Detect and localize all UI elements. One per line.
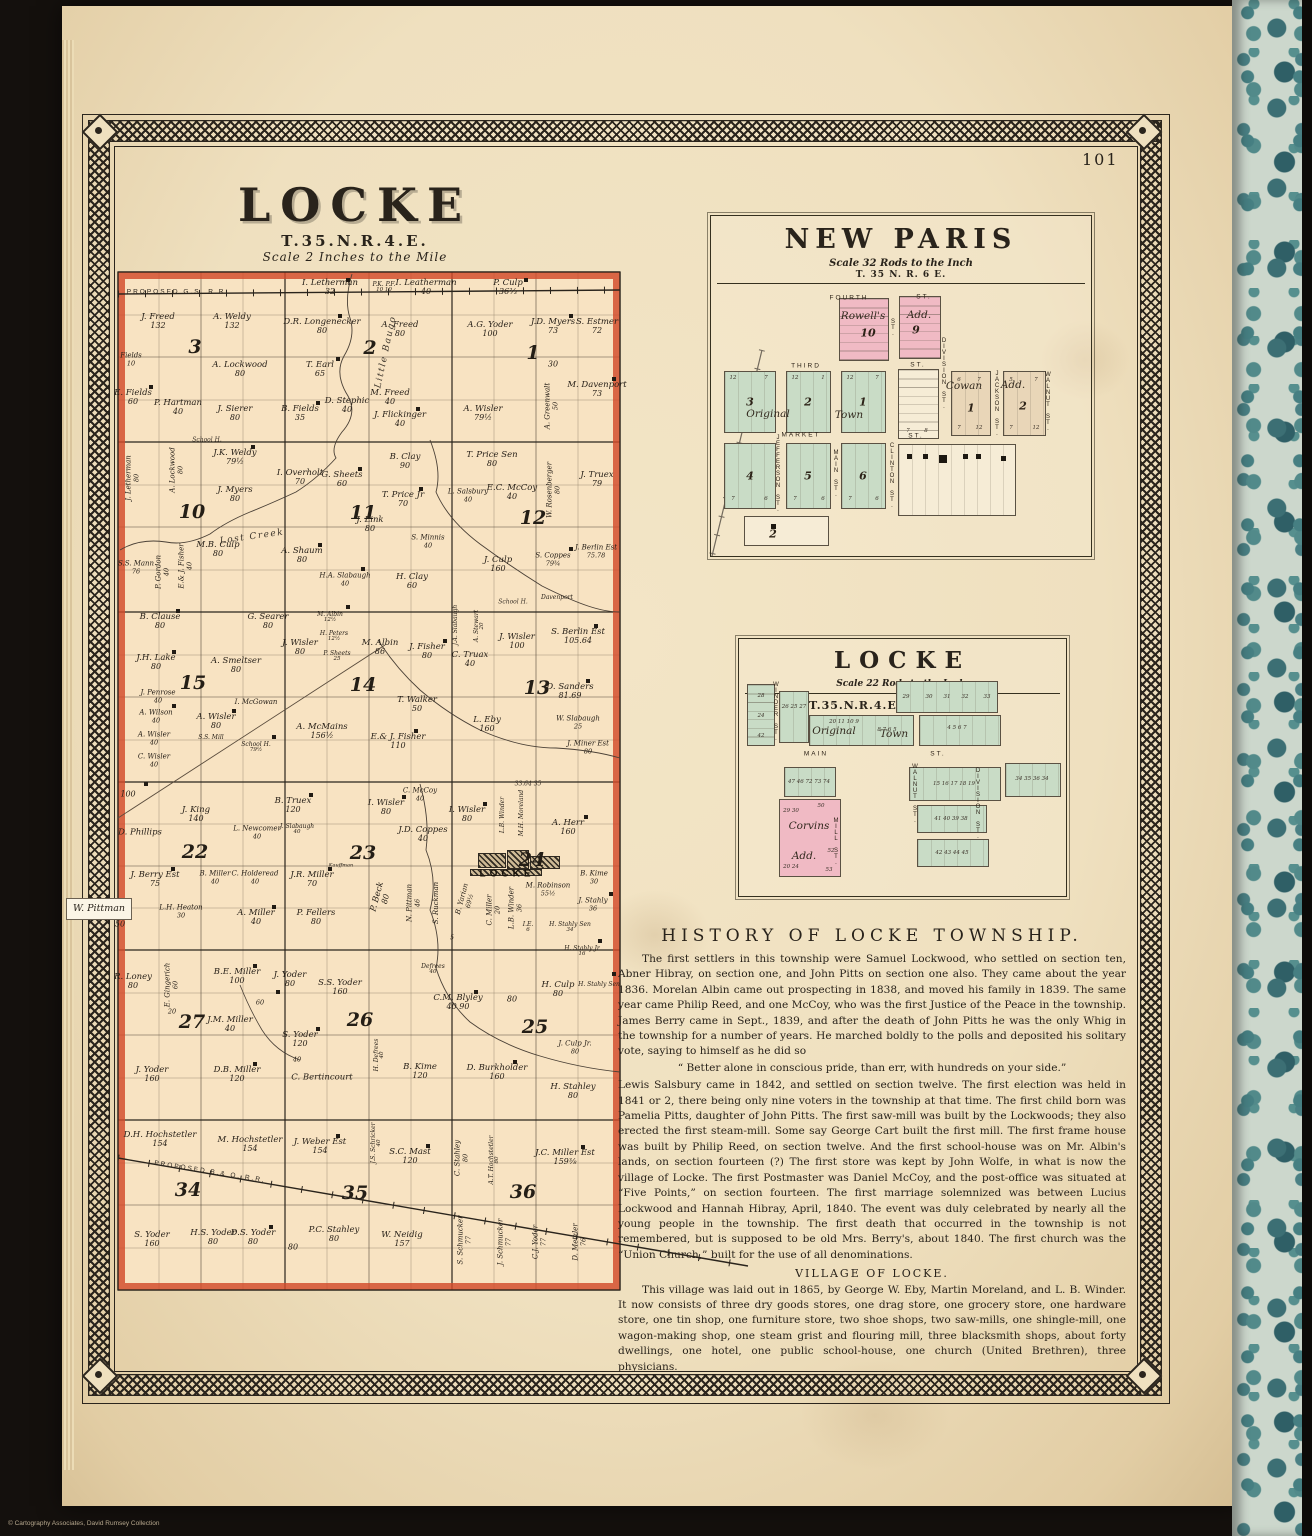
parcel-label: B. Yarian69½ [455, 883, 477, 918]
parcel-acreage: 34 [549, 928, 591, 934]
parcel-acreage: 25 [556, 723, 600, 730]
house-symbol [581, 1145, 585, 1149]
parcel-acreage: 80 [554, 462, 561, 518]
house-symbol [144, 782, 148, 786]
street-label: JACKSON ST. [994, 371, 1000, 437]
parcel-acreage: 79¾ [535, 560, 570, 567]
parcel-acreage: 80 [462, 1140, 469, 1176]
building-symbol [923, 454, 928, 459]
lot-number: 29 30 [783, 808, 799, 814]
parcel-acreage: 40 [233, 833, 281, 840]
parcel-label: H. Stahley80 [550, 1083, 595, 1101]
parcel-acreage: 40 [487, 493, 537, 502]
parcel-acreage: 80 [507, 996, 517, 1005]
parcel-acreage: 32 [302, 288, 358, 297]
parcel-acreage: 40 [138, 739, 170, 746]
parcel-acreage: 50 [397, 705, 437, 714]
parcel-label: D. Phillips [118, 828, 162, 837]
parcel-acreage: 40 [139, 717, 172, 724]
parcel-label: B. Clay90 [390, 453, 421, 471]
parcel-label: L. Newcomer40 [233, 826, 281, 841]
parcel-acreage: 120 [282, 1040, 317, 1049]
lot-number: 20 11 10 9 [829, 719, 859, 725]
parcel-label: S. Yoder120 [282, 1031, 317, 1049]
lot-number: 30 [926, 694, 933, 700]
house-symbol [346, 605, 350, 609]
addition-label: Original [812, 725, 855, 737]
parcel-label: M. Davenport73 [567, 381, 626, 399]
lot-number: 7 [1034, 377, 1038, 383]
atlas-page: 101 LOCKE T.35.N.R.4.E. Scale 2 Inches t… [0, 0, 1312, 1536]
house-symbol [338, 314, 342, 318]
parcel-label: J.C. Miller Est159⅜ [535, 1149, 595, 1167]
parcel-label: H.A. Slabaugh40 [319, 573, 370, 588]
house-symbol [569, 314, 573, 318]
parcel-acreage: 40 [293, 1056, 301, 1063]
parcel-label: J. Schmucker77 [498, 1219, 513, 1266]
parcel-acreage: 120 [275, 806, 312, 815]
building-symbol [907, 454, 912, 459]
plat-block [898, 369, 939, 439]
parcel-label: J. Culp Jr.80 [558, 1041, 591, 1056]
parcel-acreage: 81.69 [546, 692, 593, 701]
collection-credit: © Cartography Associates, David Rumsey C… [8, 1520, 159, 1527]
parcel-acreage: 140 [182, 815, 210, 824]
house-symbol [318, 543, 322, 547]
parcel-acreage: 154 [124, 1140, 197, 1149]
parcel-acreage: 154 [218, 1145, 283, 1154]
parcel-acreage: 159⅜ [535, 1158, 595, 1167]
parcel-acreage: 79½ [463, 414, 502, 423]
parcel-acreage: 80 [567, 748, 609, 755]
parcel-label: A. Wisler80 [196, 713, 235, 731]
history-subheading: VILLAGE OF LOCKE. [618, 1266, 1126, 1281]
parcel-label: Fields10 [120, 353, 142, 368]
house-symbol [426, 1144, 430, 1148]
lot-number: 6 [859, 470, 867, 483]
parcel-owner: S.S. Mill [198, 735, 223, 741]
parcel-acreage: 40 [232, 878, 279, 885]
parcel-acreage: 80 [136, 663, 175, 672]
street-label: MARKET [781, 432, 820, 439]
parcel-acreage: 40 [370, 398, 410, 407]
parcel-label: A. Miller40 [237, 909, 275, 927]
parcel-label: J. Berlin Est75.78 [575, 545, 617, 560]
lot-number: 5 [804, 470, 812, 483]
parcel-label: M. Freed40 [370, 389, 410, 407]
parcel-acreage: 40 [398, 835, 447, 844]
parcel-label: T. Price Jr70 [382, 491, 424, 509]
parcel-label: J. Weber Est154 [294, 1138, 346, 1156]
lot-number: 53 [826, 867, 833, 873]
parcel-acreage: 20 [168, 1008, 176, 1015]
building-symbol [1001, 456, 1006, 461]
parcel-label: H. Defrees40 [374, 1039, 386, 1072]
parcel-acreage: 80 [288, 1244, 298, 1253]
parcel-label: J. Berry Est75 [130, 871, 179, 889]
street-label: ST. [908, 433, 923, 440]
parcel-label: P. Culp36⅔ [493, 279, 523, 297]
house-symbol [419, 487, 423, 491]
parcel-label: C. Stahley80 [455, 1140, 470, 1176]
parcel-acreage: 100 [120, 791, 135, 800]
parcel-label: R. Loney80 [114, 973, 152, 991]
parcel-label: 80 [507, 996, 517, 1005]
parcel-acreage: 80 [114, 982, 152, 991]
parcel-acreage: 80 [495, 1135, 501, 1184]
parcel-label: P. Sheets25 [323, 651, 350, 663]
plat-block [779, 691, 809, 743]
parcel-acreage: 160 [134, 1240, 169, 1249]
parcel-acreage: 40 [448, 496, 488, 503]
street-label: FOURTH [830, 295, 869, 302]
parcel-label: A. Smeltser80 [211, 657, 261, 675]
parcel-acreage: 77 [540, 1225, 547, 1259]
parcel-label: J. Letherman80 [126, 455, 141, 501]
parcel-label: B. Kime30 [580, 871, 608, 886]
lot-number: 42 43 44 45 [935, 850, 968, 856]
parcel-label: 100 [120, 791, 135, 800]
parcel-acreage: 73 [531, 327, 575, 336]
parcel-label: G. Searer80 [248, 613, 289, 631]
parcel-acreage: 120 [214, 1075, 261, 1084]
house-symbol [524, 278, 528, 282]
section-number: 25 [522, 1016, 548, 1038]
street-label: ST. [890, 319, 896, 337]
house-symbol [598, 939, 602, 943]
parcel-label: S. Estmer72 [576, 318, 618, 336]
parcel-label: B.E. Miller100 [214, 968, 261, 986]
parcel-label: J. Yoder160 [136, 1066, 169, 1084]
map-note: 33.64 35 [515, 781, 542, 788]
parcel-acreage: 10 10 [373, 288, 396, 294]
lot-number: 50 [818, 803, 825, 809]
parcel-label: J. Wisler100 [499, 633, 535, 651]
parcel-label: J.S. Schricker40 [371, 1122, 383, 1163]
house-symbol [269, 1225, 273, 1229]
house-symbol [609, 892, 613, 896]
parcel-label: A. Wisler40 [138, 732, 170, 747]
parcel-acreage: 40 [403, 795, 437, 802]
parcel-acreage: 40 [154, 408, 202, 417]
parcel-label: T. Price Sen80 [466, 451, 517, 469]
parcel-acreage: 12½ [320, 637, 348, 643]
parcel-label: S. Coppes79¾ [535, 553, 570, 568]
parcel-label: M. Albin12½ [317, 612, 343, 624]
parcel-label: W. Rosenberger80 [547, 462, 562, 518]
parcel-label: Kauffman [329, 863, 353, 868]
parcel-label: H. Stahly Jr16 [564, 946, 600, 958]
parcel-label: C. Wisler40 [138, 754, 170, 769]
new-paris-inset: NEW PARIS Scale 32 Rods to the Inch T. 3… [710, 215, 1092, 557]
street-label: CLINTON ST. [889, 443, 895, 509]
street-label: ST. [910, 362, 925, 369]
parcel-label: J. Sierer80 [218, 405, 253, 423]
section-number: 36 [510, 1181, 536, 1203]
parcel-label: D. Stephic40 [325, 397, 370, 415]
lot-number: 4 [746, 470, 754, 483]
parcel-acreage: 12½ [317, 618, 343, 624]
parcel-label: A. Wilson40 [139, 710, 172, 725]
parcel-acreage: 80 [281, 556, 322, 565]
lot-number: 9 [912, 324, 920, 337]
parcel-label: S. Schmucker77 [458, 1215, 473, 1264]
parcel-label: A.G. Yoder100 [467, 321, 512, 339]
parcel-acreage: 30 [159, 912, 202, 919]
parcel-acreage: 80 [133, 455, 140, 501]
house-symbol [612, 377, 616, 381]
parcel-label: A. Stewart20 [474, 610, 486, 642]
parcel-acreage: 80 [177, 447, 184, 492]
parcel-acreage: 73 [567, 390, 626, 399]
street-label: ST. [930, 751, 945, 758]
lot-number: 29 [903, 694, 910, 700]
parcel-acreage: 40 [207, 1025, 253, 1034]
parcel-label: J. Slabaugh40 [280, 824, 314, 836]
parcel-acreage: 40 [237, 918, 275, 927]
parcel-label: S. Minnis40 [411, 535, 444, 550]
parcel-label: S. Ruckman [433, 882, 441, 924]
section-number: 1 [526, 342, 539, 364]
street-label: MILL ST. [833, 818, 839, 866]
lot-number: 12 [730, 375, 737, 381]
parcel-acreage: 70 [290, 880, 333, 889]
house-symbol [251, 445, 255, 449]
history-body: The first settlers in this township were… [618, 952, 1126, 1375]
parcel-acreage: 79 [580, 480, 613, 489]
parcel-label: D. Burkholder160 [467, 1064, 528, 1082]
parcel-label: A. Weldy132 [213, 313, 251, 331]
lot-number: 5 [1009, 377, 1013, 383]
section-number: 15 [180, 672, 206, 694]
lot-number: 7 [957, 425, 961, 431]
parcel-label: 60 [256, 999, 264, 1006]
parcel-label: H. Peters12½ [320, 631, 348, 643]
creek-label: Little Baugo [373, 315, 398, 390]
building-symbol [939, 455, 947, 463]
lot-number: 6 [875, 496, 879, 502]
plat-block [744, 516, 829, 546]
house-symbol [336, 1134, 340, 1138]
parcel-acreage: 40 [380, 1039, 386, 1072]
lot-number: 15 16 17 18 19 [933, 781, 975, 787]
parcel-acreage: 76 [118, 568, 154, 575]
lot-number: 1 [859, 396, 867, 409]
map-note: School H. [192, 437, 222, 444]
lot-number: 41 40 39 38 [934, 816, 967, 822]
parcel-acreage: 120 [403, 1072, 437, 1081]
lot-number: 12 [1033, 425, 1040, 431]
parcel-label: D.H. Hochstetler154 [124, 1131, 197, 1149]
parcel-label: L.B. Winder [500, 797, 506, 833]
lot-number: 12 [847, 375, 854, 381]
parcel-label: D.B. Miller120 [214, 1066, 261, 1084]
parcel-acreage: 154 [294, 1147, 346, 1156]
section-number: 2 [363, 337, 376, 359]
house-symbol [584, 815, 588, 819]
parcel-label: H. Clay60 [396, 573, 428, 591]
parcel-owner: C. Bertincourt [291, 1073, 352, 1082]
lot-number: 7 [848, 496, 852, 502]
parcel-acreage: 80 [368, 808, 404, 817]
parcel-label: P. Hartman40 [154, 399, 202, 417]
parcel-label: J.M. Miller40 [207, 1016, 253, 1034]
parcel-acreage: 36 [578, 905, 607, 912]
parcel-acreage: 80 [231, 1238, 276, 1247]
lot-number: 12 [792, 375, 799, 381]
house-symbol [253, 964, 257, 968]
parcel-label: Davenport [541, 595, 573, 601]
parcel-label: P. Gordon40 [156, 555, 171, 589]
parcel-label: 40 [293, 1056, 301, 1063]
parcel-acreage: 80 [356, 525, 383, 534]
parcel-acreage: 40 [138, 761, 170, 768]
parcel-acreage: 80 [542, 990, 575, 999]
history-paragraph: Lewis Salsbury came in 1842, and settled… [618, 1078, 1126, 1263]
history-paragraph: This village was laid out in 1865, by Ge… [618, 1283, 1126, 1375]
parcel-owner: Davenport [541, 595, 573, 601]
section-number: 34 [175, 1179, 201, 1201]
parcel-acreage: 76 [580, 1223, 587, 1260]
lot-number: 7 [906, 428, 910, 434]
parcel-acreage: 40 [280, 830, 314, 836]
section-number: 10 [179, 501, 205, 523]
parcel-label: P. Beck80 [369, 881, 394, 915]
parcel-acreage: 60 [172, 963, 179, 1008]
street-label: THIRD [791, 363, 821, 370]
locke-plat: MAINST.WINDER ST.MILL ST.WALNUT ST.DIVIS… [739, 639, 1066, 896]
house-symbol [171, 867, 175, 871]
street-label: WALNUT ST. [1045, 372, 1051, 432]
parcel-label: E.& J. Fisher40 [179, 543, 194, 588]
parcel-owner: D. Phillips [118, 828, 162, 837]
parcel-label: E.& J. Fisher110 [371, 733, 426, 751]
parcel-label: 20 [168, 1008, 176, 1015]
parcel-acreage: 110 [371, 742, 426, 751]
parcel-acreage: 36⅔ [493, 288, 523, 297]
parcel-label: C. McCoy40 [403, 788, 437, 803]
parcel-label: 80 [288, 1244, 298, 1253]
parcel-acreage: 79½ [241, 748, 271, 754]
parcel-acreage: 80 [212, 370, 267, 379]
parcel-label: I. Wisler80 [449, 806, 485, 824]
addition-label: Rowell's [841, 310, 885, 322]
parcel-acreage: 80 [409, 652, 445, 661]
lot-number: 1 [967, 402, 975, 415]
parcel-acreage: 40 90 [433, 1003, 482, 1012]
parcel-acreage: 20 [480, 610, 486, 642]
parcel-label: T. Earl65 [306, 361, 334, 379]
parcel-owner: S. Ruckman [433, 882, 441, 924]
parcel-label: S. Yoder160 [134, 1231, 169, 1249]
house-symbol [513, 1060, 517, 1064]
history-section: HISTORY OF LOCKE TOWNSHIP. The first set… [618, 926, 1126, 1375]
parcel-label: H. Stahly Sen [578, 982, 620, 988]
parcel-acreage: 132 [141, 322, 175, 331]
parcel-acreage: 80 [283, 327, 360, 336]
parcel-label: J. Stahly36 [578, 898, 607, 913]
parcel-label: E.C. McCoy40 [487, 484, 537, 502]
parcel-acreage: 80 [550, 1092, 595, 1101]
section-number: 12 [520, 507, 546, 529]
parcel-label: S. Berlin Est105.64 [551, 628, 605, 646]
parcel-label: 50 [115, 921, 125, 930]
parcel-label: M. Albin86 [362, 639, 399, 657]
parcel-acreage: 80 [449, 815, 485, 824]
section-number: 13 [524, 677, 550, 699]
lot-number: 8 [924, 428, 928, 434]
parcel-owner: Kauffman [329, 863, 353, 868]
parcel-acreage: 20 [494, 895, 501, 926]
parcel-label: A. Lockwood80 [170, 447, 185, 492]
parcel-owner: M.H. Moreland [519, 790, 525, 836]
parcel-label: 30 [548, 361, 558, 370]
parcel-acreage: 160 [467, 1073, 528, 1082]
section-number: 22 [182, 841, 208, 863]
parcel-acreage: 132 [213, 322, 251, 331]
parcel-label: J. Yoder80 [274, 971, 307, 989]
lot-number: 33 [984, 694, 991, 700]
lot-number: 2 [804, 396, 812, 409]
lot-number: 34 35 36 34 [1015, 776, 1048, 782]
house-symbol [253, 1062, 257, 1066]
parcel-label: A. Lockwood80 [212, 361, 267, 379]
parcel-label: H. Culp80 [542, 981, 575, 999]
parcel-label: A. McMains156½ [296, 723, 347, 741]
parcel-label: J. Penrose40 [140, 690, 175, 705]
lot-number: 7 [793, 496, 797, 502]
lot-number: 24 [758, 713, 765, 719]
street-label: WALNUT ST. [912, 764, 918, 824]
lot-number: 7 [731, 496, 735, 502]
addition-label: Corvins [789, 820, 830, 832]
parcel-acreage: 80 [466, 460, 517, 469]
house-symbol [309, 793, 313, 797]
house-symbol [358, 467, 362, 471]
parcel-label: J.D. Coppes40 [398, 826, 447, 844]
parcel-label: B. Miller40 [200, 871, 231, 886]
parcel-label: J. Flickinger40 [374, 411, 426, 429]
parcel-acreage: 16 [564, 952, 600, 958]
parcel-label: I. McGowan [235, 699, 278, 707]
parcel-acreage: 60 [256, 999, 264, 1006]
street-label: DIVISION ST. [975, 768, 981, 840]
parcel-label: A. Shaum80 [281, 547, 322, 565]
section-number: 14 [350, 674, 376, 696]
addition-label: Add. [907, 309, 931, 321]
map-note: School H. [498, 599, 528, 606]
parcel-acreage: 160 [318, 988, 362, 997]
parcel-acreage: 100 [499, 642, 535, 651]
parcel-acreage: 30 [548, 361, 558, 370]
lot-number: 26 25 27 [782, 704, 807, 710]
parcel-acreage: 80 [211, 666, 261, 675]
parcel-label: J. Fisher80 [409, 643, 445, 661]
lot-number: 10 [860, 327, 875, 340]
addition-label: Original [746, 408, 789, 420]
house-symbol [594, 624, 598, 628]
house-symbol [232, 709, 236, 713]
parcel-label: M.H. Moreland [519, 790, 525, 836]
parcel-label: C. Holderead40 [232, 871, 279, 886]
parcel-acreage: 156½ [296, 732, 347, 741]
house-symbol [361, 567, 365, 571]
section-number: 11 [350, 502, 376, 524]
parcel-label: P. Fellers80 [297, 909, 336, 927]
parcel-label: G. Sheets60 [321, 471, 362, 489]
parcel-acreage: 75 [130, 880, 179, 889]
locke-inset: LOCKE Scale 22 Rods to the Inch. T.35.N.… [738, 638, 1067, 897]
